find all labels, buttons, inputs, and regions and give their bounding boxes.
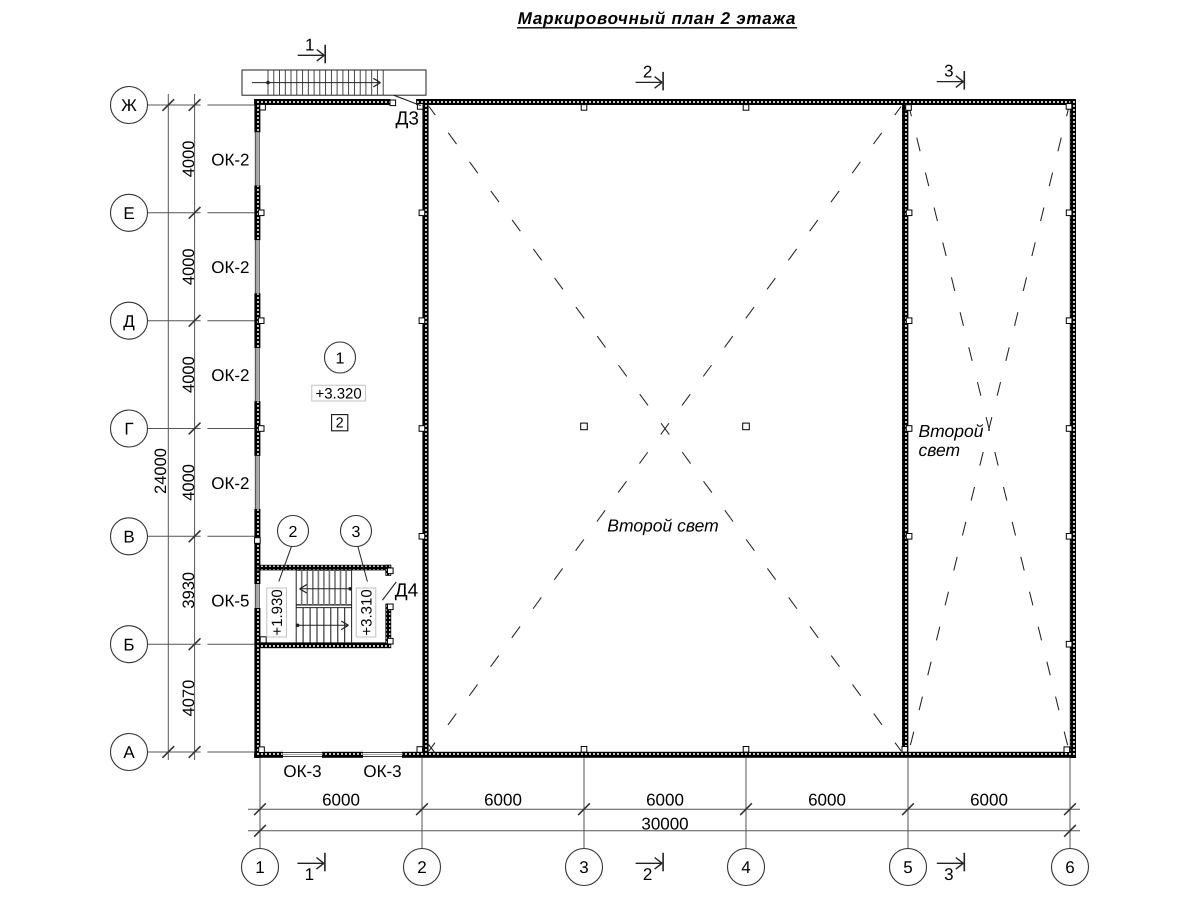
svg-text:Второй: Второй — [919, 421, 984, 441]
svg-text:1: 1 — [336, 350, 345, 367]
svg-text:1: 1 — [255, 858, 264, 877]
svg-text:4000: 4000 — [180, 464, 198, 501]
svg-text:А: А — [123, 743, 135, 762]
svg-text:6: 6 — [1065, 858, 1074, 877]
svg-text:4000: 4000 — [180, 248, 198, 285]
svg-text:6000: 6000 — [484, 790, 522, 809]
svg-text:В: В — [123, 527, 134, 546]
svg-text:Д: Д — [123, 312, 135, 331]
svg-text:6000: 6000 — [646, 790, 684, 809]
svg-text:4000: 4000 — [180, 141, 198, 178]
svg-text:ОК-3: ОК-3 — [363, 762, 401, 781]
svg-text:2: 2 — [643, 865, 652, 884]
svg-text:1: 1 — [305, 865, 314, 884]
svg-text:Е: Е — [123, 204, 134, 223]
svg-text:Д4: Д4 — [395, 580, 419, 601]
svg-text:ОК-2: ОК-2 — [211, 150, 249, 169]
svg-text:Г: Г — [124, 420, 133, 439]
svg-text:24000: 24000 — [152, 448, 170, 494]
svg-text:+3.310: +3.310 — [358, 589, 375, 635]
svg-text:4000: 4000 — [180, 356, 198, 393]
svg-text:ОК-5: ОК-5 — [211, 591, 249, 610]
svg-text:6000: 6000 — [808, 790, 846, 809]
svg-text:3: 3 — [579, 858, 588, 877]
svg-text:3: 3 — [944, 865, 953, 884]
svg-text:2: 2 — [643, 62, 652, 81]
svg-text:6000: 6000 — [322, 790, 360, 809]
svg-text:3: 3 — [352, 524, 361, 541]
svg-text:30000: 30000 — [641, 814, 688, 833]
svg-text:свет: свет — [919, 440, 961, 460]
svg-text:4: 4 — [741, 858, 750, 877]
svg-text:Маркировочный план 2 этажа: Маркировочный план 2 этажа — [518, 9, 796, 28]
svg-text:4070: 4070 — [180, 680, 198, 717]
svg-text:+3.320: +3.320 — [315, 385, 361, 402]
svg-text:ОК-3: ОК-3 — [283, 762, 321, 781]
svg-text:ОК-2: ОК-2 — [211, 474, 249, 493]
svg-text:1: 1 — [305, 35, 314, 54]
svg-text:ОК-2: ОК-2 — [211, 258, 249, 277]
svg-text:Второй свет: Второй свет — [607, 516, 718, 536]
svg-text:3: 3 — [944, 62, 953, 81]
svg-text:+1.930: +1.930 — [269, 589, 286, 635]
svg-text:2: 2 — [289, 524, 298, 541]
svg-text:Б: Б — [123, 635, 134, 654]
svg-text:Ж: Ж — [121, 96, 137, 115]
svg-text:ОК-2: ОК-2 — [211, 366, 249, 385]
svg-text:3930: 3930 — [180, 572, 198, 609]
svg-text:5: 5 — [903, 858, 912, 877]
svg-text:2: 2 — [336, 416, 344, 432]
svg-text:Д3: Д3 — [396, 109, 419, 130]
svg-text:6000: 6000 — [970, 790, 1008, 809]
svg-text:2: 2 — [417, 858, 426, 877]
